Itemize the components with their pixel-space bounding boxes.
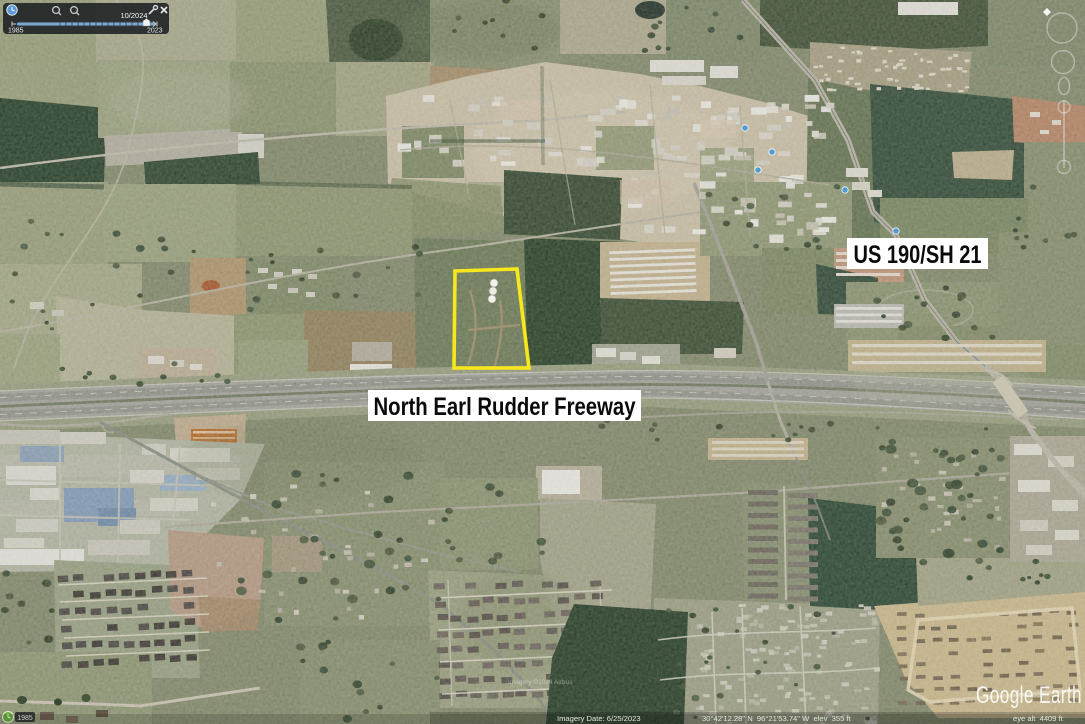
svg-text:10/2024: 10/2024 [120, 11, 147, 20]
svg-text:Imagery ©2024 Airbus: Imagery ©2024 Airbus [508, 678, 573, 686]
svg-text:eye alt 4409 ft: eye alt 4409 ft [1013, 714, 1064, 723]
svg-text:30°42'12.28" N 96°21'53.74" W: 30°42'12.28" N 96°21'53.74" W elev 355 f… [702, 714, 852, 723]
svg-text:Google Earth: Google Earth [976, 682, 1082, 709]
svg-text:1985: 1985 [8, 28, 24, 35]
svg-text:North Earl Rudder Freeway: North Earl Rudder Freeway [374, 393, 636, 421]
svg-text:2023: 2023 [147, 28, 163, 35]
svg-text:US 190/SH 21: US 190/SH 21 [854, 241, 982, 269]
svg-text:Imagery Date: 6/25/2023: Imagery Date: 6/25/2023 [557, 714, 641, 723]
